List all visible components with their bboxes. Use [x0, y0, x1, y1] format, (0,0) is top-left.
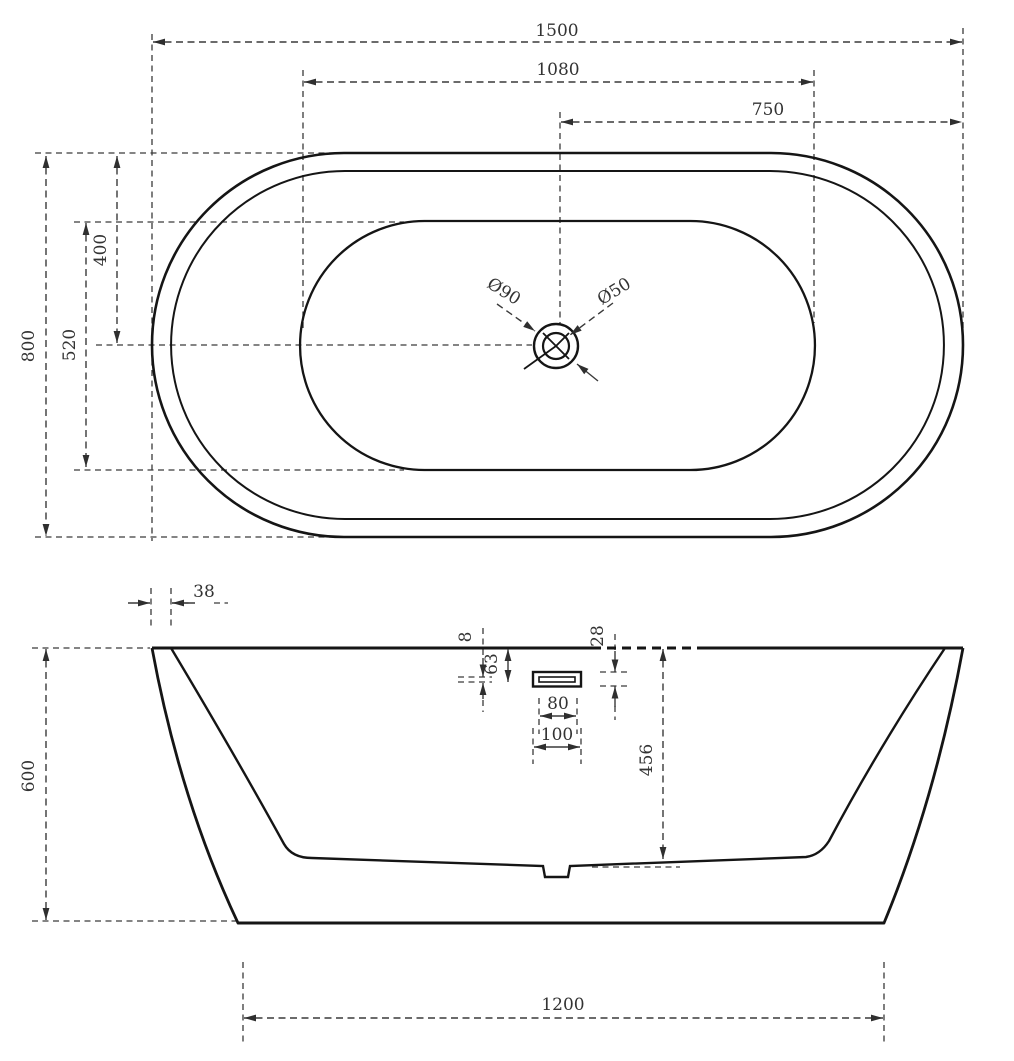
basin-width-label: 520: [60, 329, 80, 361]
drain-outer-leader-line: [497, 304, 535, 331]
dim-overall-length: 1500: [153, 21, 962, 42]
overflow-outer-rect: [533, 672, 581, 687]
overall-length-label: 1500: [535, 21, 578, 41]
overflow-top-offset-label: 63: [482, 653, 502, 675]
dim-overall-width: 800: [19, 156, 46, 536]
side-view: 38 600 8 63 28 80: [19, 582, 963, 1042]
drain: Ø90 Ø50: [483, 274, 634, 381]
overall-width-label: 800: [19, 330, 39, 362]
dim-basin-width: 520: [60, 223, 86, 467]
drain-outer-diameter-label: Ø90: [483, 274, 524, 310]
slot-width-label: 80: [547, 694, 569, 714]
dim-overall-height: 600: [19, 649, 46, 920]
rim-width-label: 38: [193, 582, 215, 602]
dim-overflow-slot-height: 8: [456, 632, 483, 699]
dim-overflow-cutout-height: 28: [588, 625, 615, 707]
dim-drain-offset: 750: [561, 100, 962, 122]
drain-outer-leader-arrow: [577, 364, 598, 381]
dim-overflow-to-bottom: 456: [637, 649, 663, 859]
side-view-extension-lines: [32, 588, 884, 1042]
cutout-height-label: 28: [588, 625, 608, 647]
drain-offset-label: 750: [752, 100, 784, 120]
base-length-label: 1200: [541, 995, 584, 1015]
drain-inner-diameter-label: Ø50: [594, 274, 635, 310]
dim-basin-length: 1080: [304, 60, 813, 82]
basin-length-label: 1080: [536, 60, 579, 80]
slot-height-label: 8: [456, 632, 476, 643]
cutout-width-label: 100: [541, 725, 573, 745]
dim-centerline-offset: 400: [91, 156, 117, 343]
dim-overflow-slot-width: 80: [540, 694, 576, 716]
technical-drawing-page: Ø90 Ø50 1500 1080 750 800 520 400: [0, 0, 1014, 1061]
dim-base-length: 1200: [244, 995, 883, 1018]
overflow-fitting: [533, 672, 581, 687]
tub-outer-profile: [152, 648, 963, 923]
overall-height-label: 600: [19, 760, 39, 792]
dim-overflow-cutout-width: 100: [534, 725, 580, 747]
top-view: Ø90 Ø50 1500 1080 750 800 520 400: [19, 21, 963, 541]
technical-drawing-canvas: Ø90 Ø50 1500 1080 750 800 520 400: [0, 0, 1014, 1061]
dim-overflow-top-offset: 63: [482, 649, 508, 682]
centerline-offset-label: 400: [91, 234, 111, 266]
overflow-to-bottom-label: 456: [637, 744, 657, 776]
overflow-slot-rect: [539, 677, 575, 682]
